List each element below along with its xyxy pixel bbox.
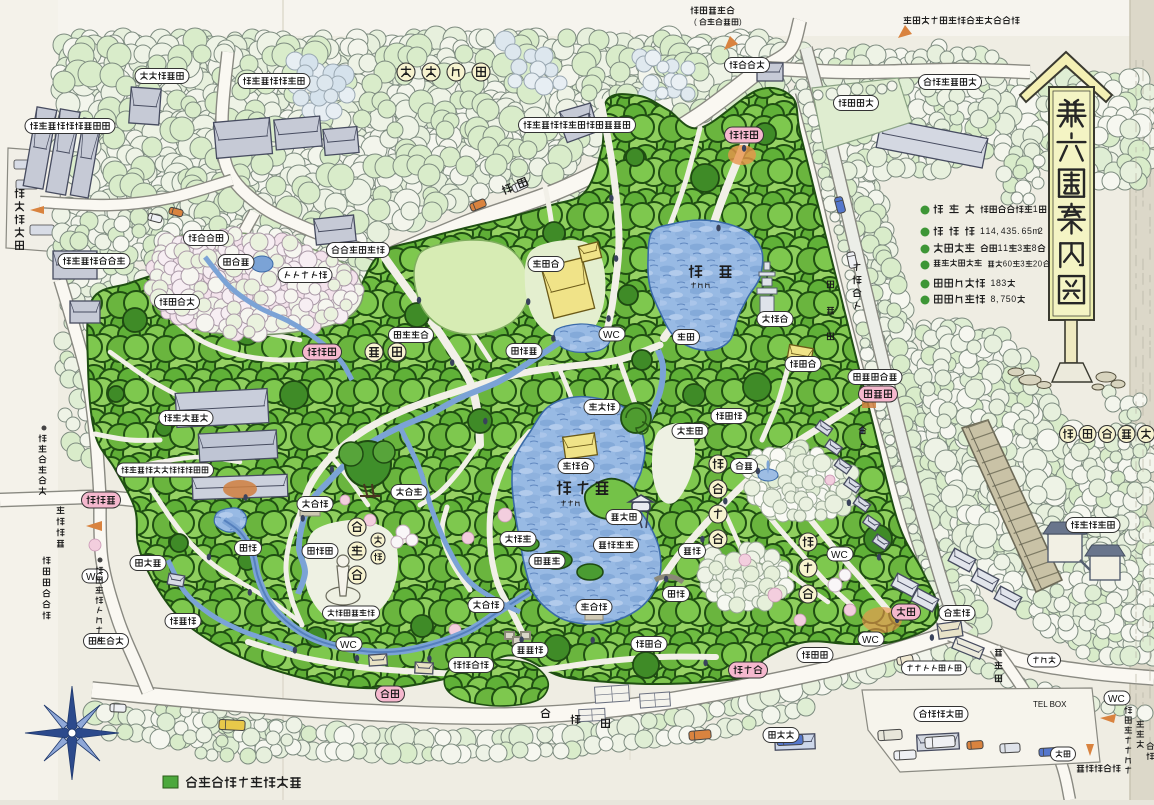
svg-text:5: 5 [1012,226,1017,236]
svg-text:6: 6 [1003,259,1007,268]
svg-text:0: 0 [1038,259,1043,268]
svg-text:6: 6 [1022,226,1027,236]
svg-text:8: 8 [1032,243,1037,253]
svg-text:1: 1 [998,243,1003,253]
svg-text:.: . [1017,226,1019,236]
svg-text:8: 8 [991,294,996,304]
svg-text:4: 4 [991,226,996,236]
svg-text:1: 1 [986,226,991,236]
svg-text:0: 0 [1008,259,1013,268]
svg-text:1: 1 [991,278,996,288]
svg-text:7: 7 [1000,294,1005,304]
svg-text:5: 5 [1027,226,1032,236]
svg-text:3: 3 [1001,278,1006,288]
svg-text:5: 5 [1006,294,1011,304]
svg-text:8: 8 [996,278,1001,288]
svg-text:3: 3 [1020,259,1024,268]
svg-text:1: 1 [1033,204,1038,214]
svg-text:3: 3 [1017,243,1022,253]
svg-text:,: , [996,294,998,304]
svg-text:3: 3 [1006,226,1011,236]
svg-text:2: 2 [1033,259,1037,268]
svg-text:,: , [996,226,998,236]
svg-text:1: 1 [980,226,985,236]
svg-text:4: 4 [1001,226,1006,236]
svg-text:0: 0 [1011,294,1016,304]
svg-text:2: 2 [1038,226,1043,236]
svg-text:1: 1 [1003,243,1008,253]
